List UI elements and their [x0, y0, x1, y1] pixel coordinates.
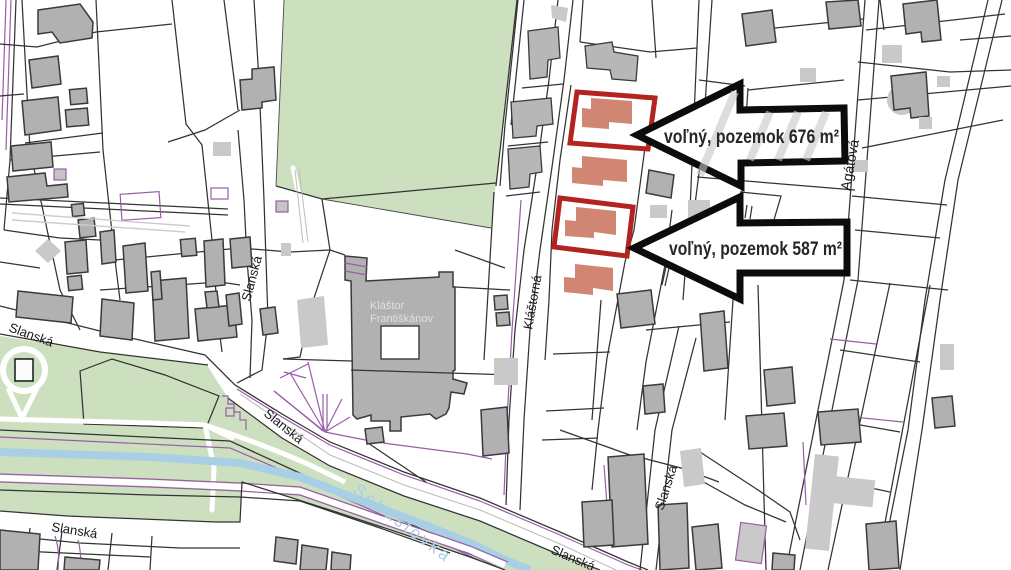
svg-text:voľný, pozemok 587 m²: voľný, pozemok 587 m²	[669, 239, 842, 260]
svg-text:voľný, pozemok 676 m²: voľný, pozemok 676 m²	[664, 127, 839, 148]
svg-text:Františkánov: Františkánov	[370, 313, 433, 325]
svg-text:Kláštor: Kláštor	[370, 300, 405, 312]
